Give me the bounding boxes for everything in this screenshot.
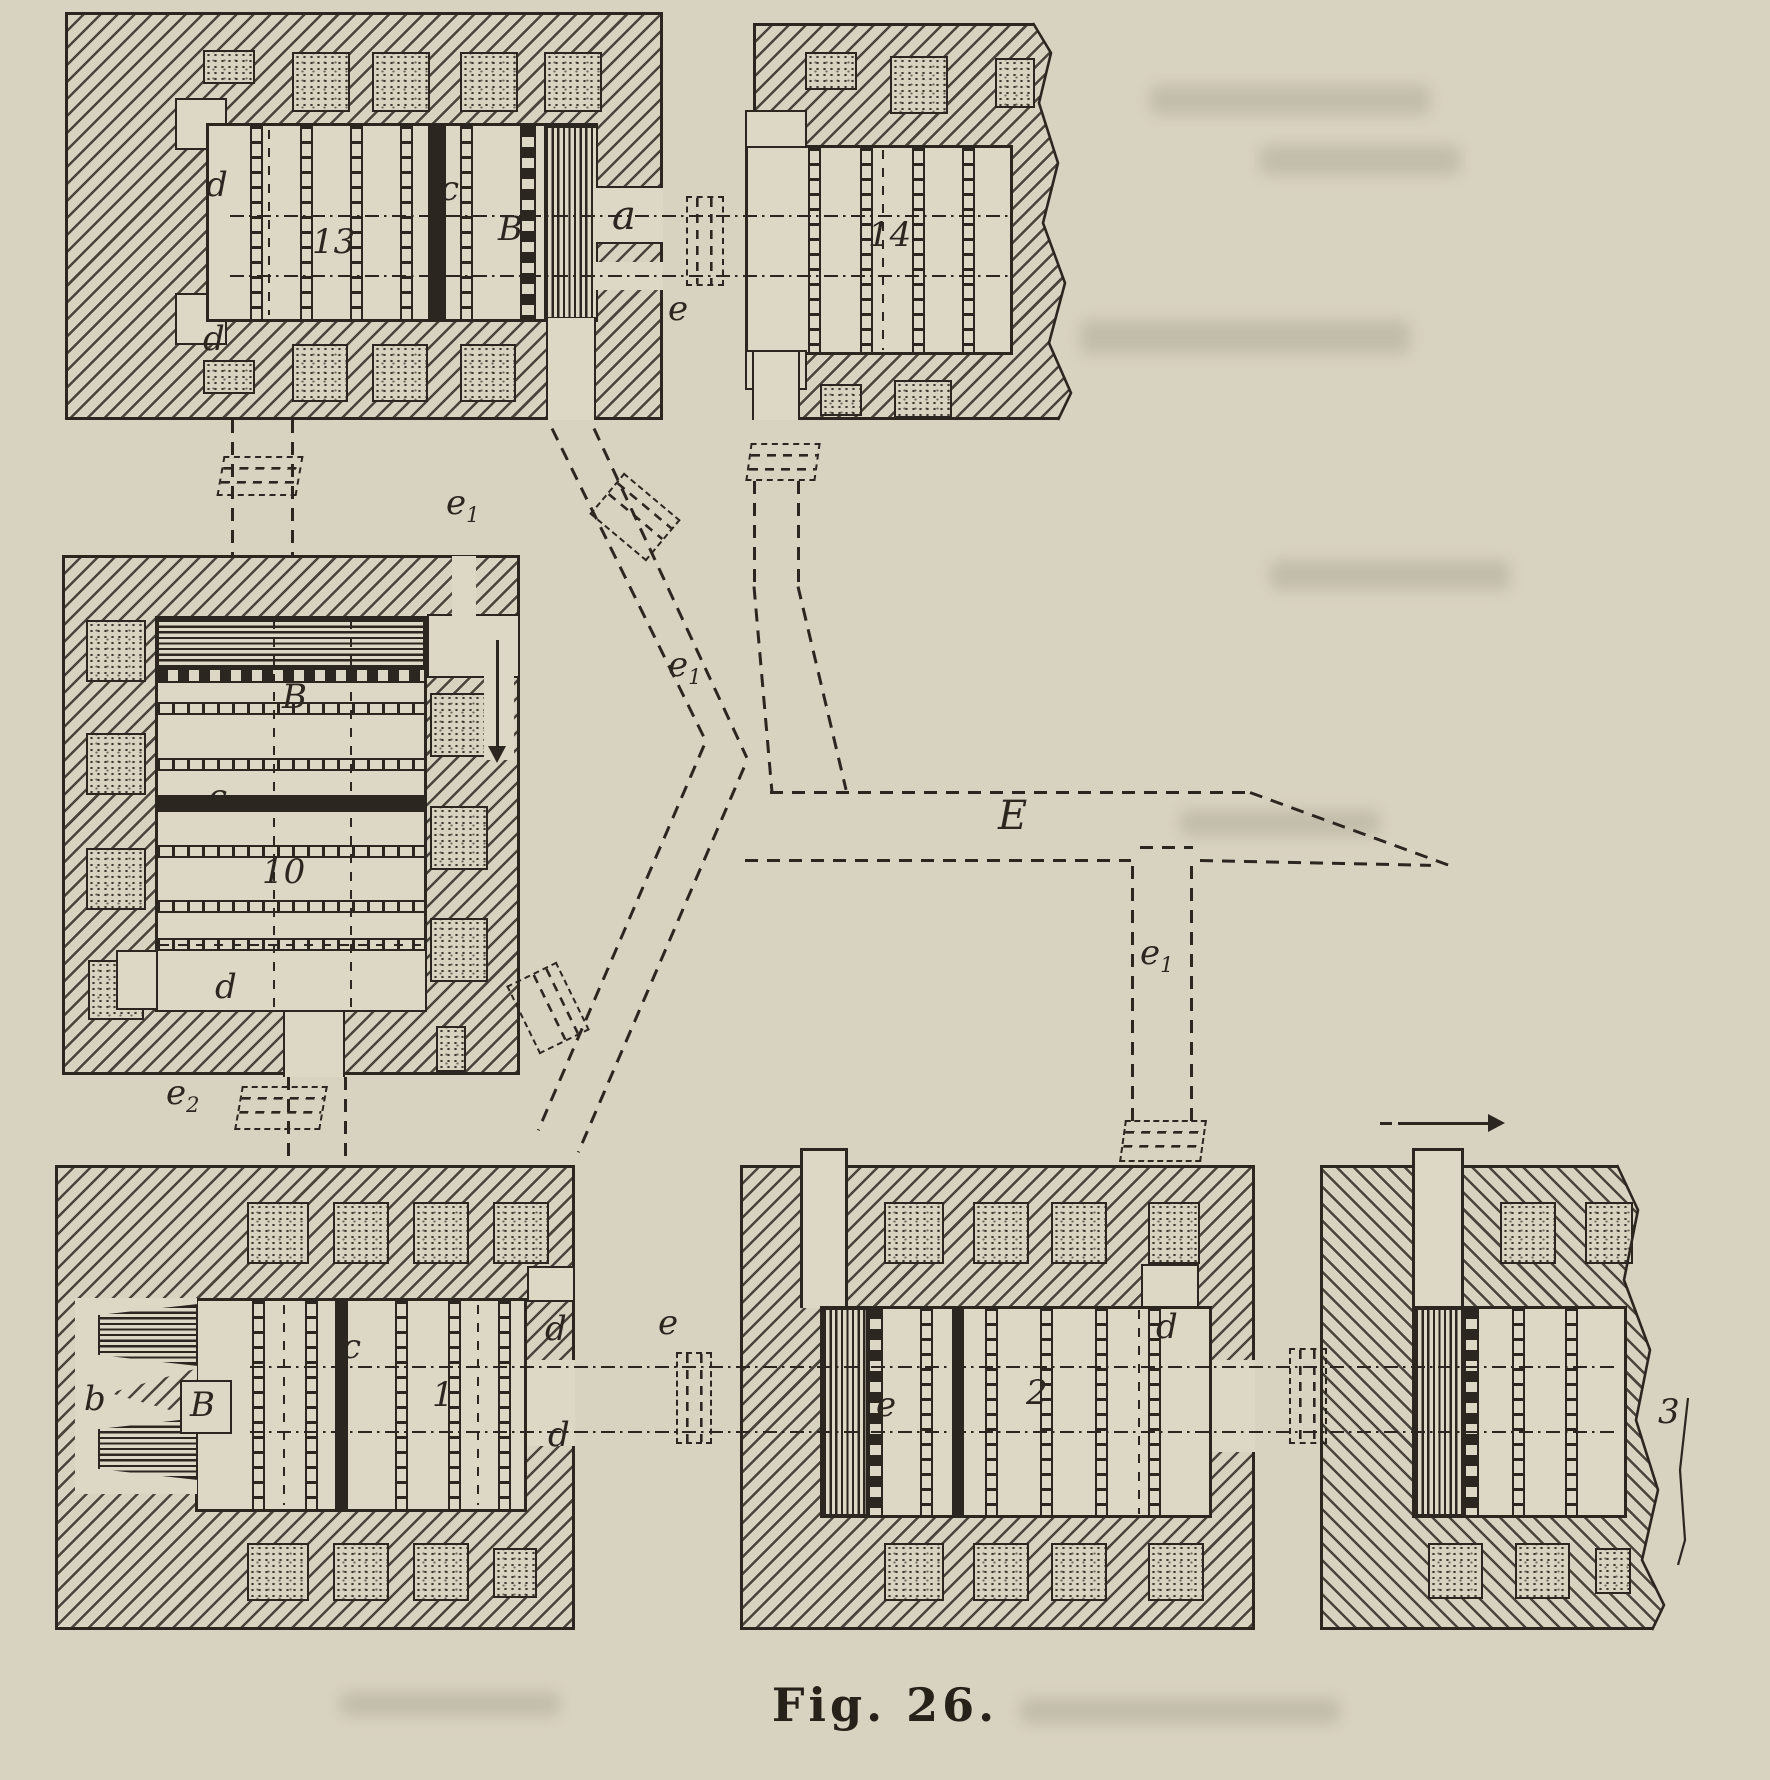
checkerwork-strip [400,126,413,319]
label-chamber-1: 1 [432,1378,454,1412]
checkerwork-strip [1095,1308,1108,1516]
flue-brick [247,1543,309,1601]
main-gallery-line [1140,846,1193,849]
flow-arrow-right [1380,1122,1392,1125]
flue-brick [372,344,428,402]
downcomer-channel [546,318,596,420]
label-c-bottom-left: c [342,1330,361,1364]
flue-brick [1051,1202,1107,1264]
flue-brick [1428,1543,1483,1599]
flue-brick [460,52,518,112]
flue-brick [203,360,255,394]
flue-brick [544,52,602,112]
flue-brick [86,620,146,682]
flue-axis-line [230,275,1013,277]
section-trace-line [160,944,424,946]
downcomer-channel [283,1012,345,1077]
label-a: a [612,196,636,236]
flue-opening [1141,1264,1199,1308]
flue-brick [86,848,146,910]
label-main-gallery-E: E [998,796,1027,836]
section-trace-line [273,620,275,1010]
flue-brick [292,52,350,112]
dark-wall [428,126,446,319]
bleedthrough-smudge [1260,145,1460,175]
checkerwork-strip [808,148,821,352]
flue-brick [1595,1548,1631,1594]
section-trace-line [350,620,352,1010]
flue-brick [333,1202,389,1264]
arrow-right-head-icon [1488,1114,1505,1132]
label-d-top: d [206,168,228,202]
checkerwork-strip [252,1301,265,1509]
arrow-backing [484,640,514,760]
label-d-middle: d [215,970,237,1004]
regenerator-grid [1414,1308,1464,1516]
label-d-top-bottom-left: d [545,1312,567,1346]
checkerwork-strip [157,758,425,771]
section-trace-line [283,1305,285,1505]
checkerwork-strip [395,1301,408,1509]
flue-brick [1051,1543,1107,1601]
flue-brick [1515,1543,1570,1599]
label-b-bottom-left: b [84,1382,106,1416]
damper-valve [589,473,680,562]
checkerwork-strip [1512,1308,1525,1516]
flue-brick [1148,1202,1200,1264]
section-trace-line [477,1305,479,1505]
sole-flue-d [157,951,425,1010]
downcomer-channel [752,352,800,420]
gallery-line [551,428,708,742]
regenerator-grid [544,126,598,319]
label-chamber-13: 13 [312,225,355,259]
section-trace-line [268,130,270,315]
checkerwork-strip [498,1301,511,1509]
flue-brick [460,344,516,402]
label-d-bottom: d [203,322,225,356]
figure-caption: Fig. 26. [685,1678,1085,1732]
flue-axis-line [250,1366,1615,1368]
flue-brick [430,693,488,757]
bleedthrough-smudge [1080,320,1410,354]
flue-brick [247,1202,309,1264]
label-B-bottom-left: B [190,1388,215,1422]
main-gallery-line [745,859,1131,862]
checker-column [1464,1308,1479,1516]
chimney-uptake [1412,1148,1464,1308]
gallery-line [537,745,705,1131]
flue-brick [973,1202,1029,1264]
label-e1-lower: e1 [1140,936,1174,976]
flue-brick [372,52,430,112]
flue-brick [86,733,146,795]
label-chamber-3: 3 [1658,1395,1680,1429]
side-port-opening [1212,1360,1255,1452]
flue-brick [820,384,862,416]
damper-valve [216,456,303,496]
flue-brick [413,1202,469,1264]
flue-brick [292,344,348,402]
damper-valve [234,1086,328,1130]
checkerwork-strip [985,1308,998,1516]
gallery-line [797,586,848,790]
label-e-bottom-gap: e [658,1306,678,1340]
flue-brick [894,380,952,418]
section-trace-line [1138,1310,1140,1514]
gallery-line [1131,866,1134,1124]
arrow-down-head-icon [488,746,506,763]
main-gallery-line [1200,859,1431,867]
gallery-line [753,586,774,791]
gallery-line [797,481,800,585]
flue-brick [1148,1543,1204,1601]
checkerwork-strip [250,126,263,319]
flue-brick [493,1202,549,1264]
flow-arrow-down [496,640,499,748]
damper-valve [686,196,724,286]
label-chamber-2: 2 [1026,1376,1048,1410]
label-chamber-10: 10 [262,855,305,889]
label-B: B [498,212,523,246]
flue-brick [805,52,857,90]
flue-brick [995,58,1035,108]
flue-brick [884,1543,944,1601]
flue-brick [430,806,488,870]
flue-brick [430,918,488,982]
label-B-middle: B [282,680,307,714]
checkerwork-strip [1565,1308,1578,1516]
flue-opening [527,1266,575,1302]
flue-brick [436,1026,466,1072]
checkerwork-strip [305,1301,318,1509]
flow-arrow-right [1398,1122,1490,1125]
flue-brick [203,50,255,84]
damper-valve [1119,1120,1207,1162]
regenerator-grid [822,1308,868,1516]
bleedthrough-smudge [340,1692,560,1716]
label-e2: e2 [166,1076,200,1116]
label-d-bottom-middle: d [1156,1310,1178,1344]
bleedthrough-smudge [1150,85,1430,115]
port-slot [452,556,476,616]
flue-brick [890,56,948,114]
dark-wall [952,1308,964,1516]
checkerwork-strip [460,126,473,319]
flue-opening [116,950,158,1010]
label-c: c [440,172,459,206]
flue-brick [973,1543,1029,1601]
checkerwork-strip [962,148,975,352]
label-chamber-14: 14 [868,218,911,252]
damper-valve [745,443,820,481]
label-e1-upper: e1 [446,486,480,526]
checkerwork-strip [920,1308,933,1516]
gallery-line [753,481,756,585]
scanned-figure-page: d c B 13 d a e 14 e1 e1 E e1 e2 B c 10 d… [0,0,1770,1780]
label-c-middle: c [208,780,227,814]
label-d-bottom-bottom-left: d [548,1418,570,1452]
gallery-line [1190,866,1193,1124]
gallery-line [577,767,745,1153]
flue-opening [745,110,807,148]
flue-brick [493,1548,537,1598]
gallery-line [593,428,749,759]
flue-brick [1500,1202,1556,1264]
chimney-uptake [800,1148,848,1308]
gallery-line [344,1077,347,1165]
checkerwork-strip [157,900,425,913]
flue-brick [1585,1202,1633,1264]
flue-brick [413,1543,469,1601]
flue-axis-line [250,1431,1615,1433]
label-e-bottom-middle: e [876,1388,896,1422]
checkerwork-strip [912,148,925,352]
damper-valve [1289,1348,1327,1444]
regenerator-grid [157,618,425,668]
bleedthrough-smudge [1270,560,1510,590]
flue-brick [333,1543,389,1601]
label-e-top-gap: e [668,292,688,326]
damper-valve [676,1352,712,1444]
dark-wall [157,795,425,812]
flue-brick [884,1202,944,1264]
label-e1-mid: e1 [668,648,702,688]
bleedthrough-smudge [1180,810,1380,836]
